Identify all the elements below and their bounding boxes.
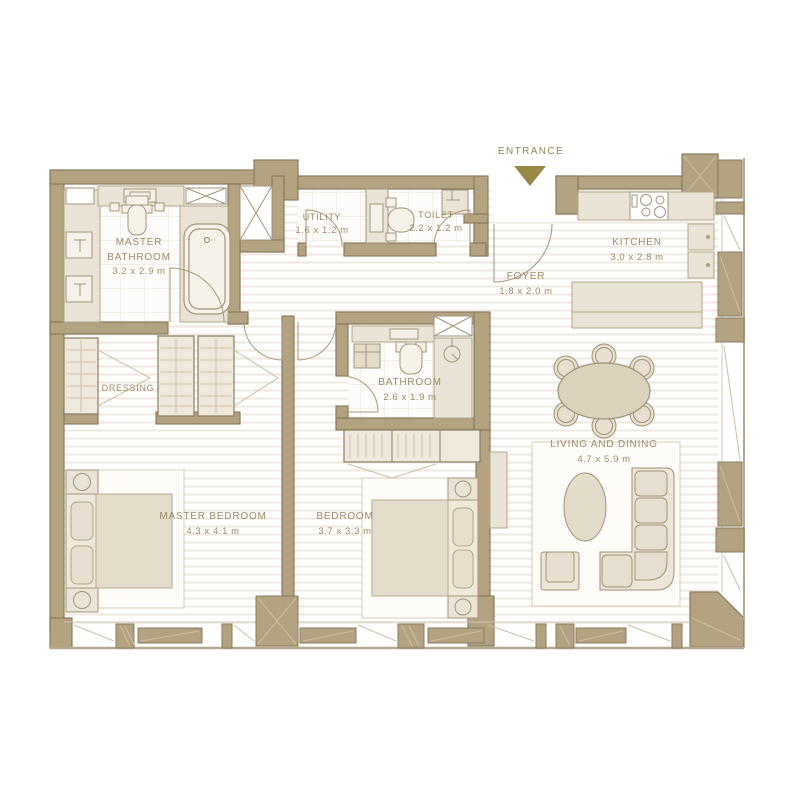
- mattress: [96, 494, 172, 588]
- shaft-corridor: [240, 186, 272, 240]
- console-table: [490, 452, 507, 528]
- armchair: [541, 552, 579, 590]
- wall-niche: [66, 188, 94, 204]
- room-label-kitchen: KITCHEN 3.0 x 2.8 m: [610, 236, 663, 264]
- pillow: [71, 546, 93, 584]
- kitchen-hob: [630, 192, 668, 220]
- room-label-bedroom: BEDROOM 3.7 x 3.3 m: [316, 510, 373, 538]
- room-label-toilet: TOILET 2.2 x 1.2 m: [409, 209, 462, 236]
- pillow: [453, 550, 473, 588]
- wardrobe-mid-1: [158, 336, 194, 416]
- bathroom-sink: [354, 344, 380, 368]
- bathtub: [184, 224, 230, 314]
- floor-plan: ENTRANCE MASTER BATHROOM 3.2 x 2.9 m UTI…: [0, 0, 800, 800]
- mattress: [372, 500, 448, 596]
- room-label-foyer: FOYER 1.8 x 2.0 m: [499, 270, 552, 298]
- shaft-bathroom: [434, 316, 472, 336]
- room-label-master-bedroom: MASTER BEDROOM 4.3 x 4.1 m: [159, 510, 266, 538]
- pillow: [71, 502, 93, 540]
- dining-table: [558, 363, 650, 419]
- pillow: [453, 508, 473, 546]
- room-label-living-dining: LIVING AND DINING 4.7 x 5.9 m: [550, 438, 658, 466]
- kitchen-island: [572, 282, 702, 328]
- entrance-label: ENTRANCE: [498, 146, 564, 157]
- room-label-dressing: DRESSING: [102, 382, 155, 395]
- sink-master-2: [66, 276, 92, 302]
- corner-bottom-right: [690, 592, 744, 647]
- bathroom-wc: [396, 342, 426, 374]
- sink-master-1: [66, 232, 92, 258]
- shaft-bathwall: [186, 188, 226, 204]
- coffee-table: [564, 473, 606, 541]
- room-label-bathroom: BATHROOM 2.6 x 1.9 m: [378, 376, 441, 404]
- wardrobe-left: [64, 338, 98, 414]
- dining-set: [554, 344, 654, 438]
- room-label-utility: UTILITY 1.6 x 1.2 m: [295, 211, 348, 238]
- wardrobe-mid-2: [198, 336, 234, 416]
- room-label-master-bathroom: MASTER BATHROOM 3.2 x 2.9 m: [97, 236, 181, 279]
